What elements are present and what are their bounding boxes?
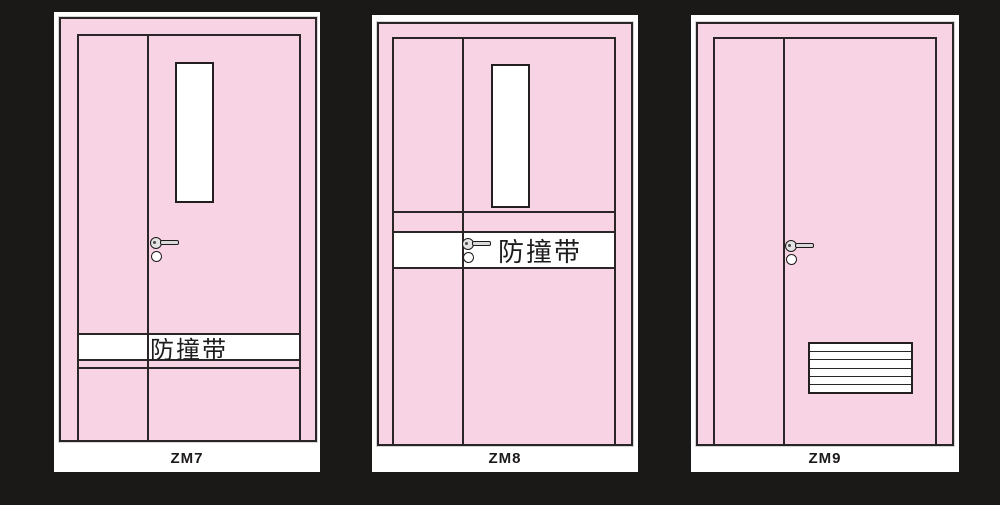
crash-band: 防撞带 (79, 333, 299, 361)
door-label: ZM9 (691, 450, 959, 467)
lock-cylinder-icon (151, 251, 162, 262)
canvas: { "page": { "background_color": "#1b1818… (0, 0, 1000, 505)
door-card-zm8: 防撞带 ZM8 (372, 15, 638, 472)
door-handle-icon (462, 238, 496, 264)
louver-slat (810, 376, 911, 384)
door-leaf-divider (147, 36, 149, 440)
louver-slat (810, 359, 911, 367)
lever-bar-icon (472, 241, 491, 246)
door-card-zm7: 防撞带 ZM7 (54, 12, 320, 472)
louver-slat (810, 344, 911, 351)
lock-cylinder-icon (463, 252, 474, 263)
door-card-zm9: ZM9 (691, 15, 959, 472)
vision-panel-window (175, 62, 214, 203)
door-frame-zm7: 防撞带 (59, 17, 317, 442)
mid-rail-line (394, 211, 614, 213)
vision-panel-window (491, 64, 530, 208)
louver-slat (810, 351, 911, 359)
door-leaves-zm9 (713, 37, 937, 446)
lock-cylinder-icon (786, 254, 797, 265)
door-frame-zm9 (696, 22, 954, 446)
door-label: ZM8 (372, 450, 638, 467)
crash-band-label: 防撞带 (79, 335, 299, 359)
crash-band: 防撞带 (394, 231, 614, 269)
door-label: ZM7 (54, 450, 320, 467)
door-leaves-zm7: 防撞带 (77, 34, 301, 442)
door-handle-icon (785, 240, 819, 266)
door-leaves-zm8: 防撞带 (392, 37, 616, 446)
door-handle-icon (150, 237, 184, 263)
louver-slat (810, 368, 911, 376)
louver-vent (808, 342, 913, 394)
bottom-rail-line (79, 367, 299, 369)
louver-slat (810, 384, 911, 392)
lever-bar-icon (160, 240, 179, 245)
door-frame-zm8: 防撞带 (377, 22, 633, 446)
lever-bar-icon (795, 243, 814, 248)
